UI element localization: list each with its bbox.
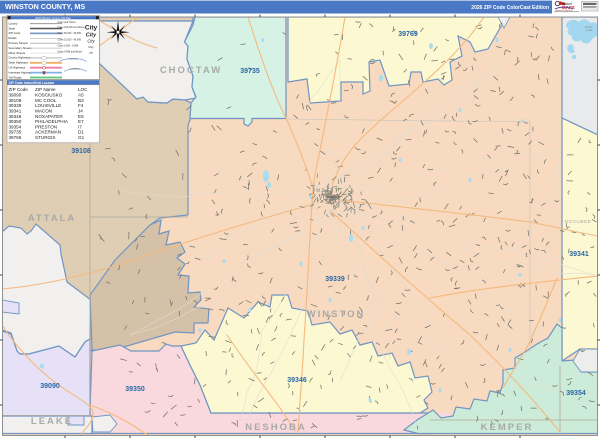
svg-text:G1: G1 — [78, 135, 85, 140]
svg-text:KOSCIUSKO: KOSCIUSKO — [35, 93, 63, 98]
svg-text:39354: 39354 — [9, 124, 22, 129]
svg-text:City: City — [88, 45, 94, 49]
svg-text:ZIP Name: ZIP Name — [35, 87, 56, 92]
svg-text:Louisville: Louisville — [326, 195, 339, 199]
svg-text:County: County — [9, 21, 18, 25]
svg-text:PRESTON: PRESTON — [35, 124, 57, 129]
svg-text:City: City — [87, 39, 95, 44]
svg-text:Primary Streets: Primary Streets — [9, 41, 29, 45]
svg-text:2026 Winston County, MS Map: 2026 Winston County, MS Map — [35, 16, 71, 20]
svg-text:Secondary Streets: Secondary Streets — [9, 46, 33, 50]
svg-text:39341: 39341 — [9, 109, 22, 114]
svg-text:39354: 39354 — [566, 390, 586, 397]
svg-text:KEMPER: KEMPER — [481, 422, 534, 433]
svg-text:D1: D1 — [78, 130, 84, 135]
svg-text:39341: 39341 — [569, 251, 589, 258]
svg-text:I7: I7 — [78, 124, 82, 129]
svg-text:LOUISVILLE: LOUISVILLE — [35, 103, 61, 108]
svg-text:Lake/River: Lake/River — [70, 68, 81, 71]
svg-text:ATTALA: ATTALA — [28, 213, 77, 224]
svg-text:LEAKE: LEAKE — [31, 416, 73, 427]
svg-text:39735: 39735 — [9, 130, 22, 135]
svg-text:City: City — [85, 25, 98, 32]
svg-text:Cities 4,999 and Below: Cities 4,999 and Below — [58, 50, 83, 53]
svg-text:WINSTON: WINSTON — [307, 309, 366, 320]
svg-text:39735: 39735 — [240, 68, 260, 75]
svg-text:39108: 39108 — [9, 98, 22, 103]
svg-text:2026 ZIP Code ColorCast Editio: 2026 ZIP Code ColorCast Edition — [471, 5, 549, 11]
svg-text:LAKE: LAKE — [586, 28, 593, 32]
svg-text:County Highways: County Highways — [9, 56, 31, 60]
svg-text:ACKERMAN: ACKERMAN — [35, 130, 61, 135]
svg-text:E6: E6 — [78, 114, 84, 119]
svg-text:Interstate Highways: Interstate Highways — [9, 70, 34, 74]
svg-text:39350: 39350 — [9, 119, 22, 124]
svg-text:39090: 39090 — [40, 383, 60, 390]
svg-text:State: State — [9, 26, 16, 30]
svg-text:STURGIS: STURGIS — [35, 135, 55, 140]
svg-text:State Highways: State Highways — [9, 61, 29, 65]
svg-text:Minor Streets: Minor Streets — [9, 51, 26, 55]
svg-text:39108: 39108 — [71, 148, 91, 155]
svg-text:NOXUBEE: NOXUBEE — [565, 219, 592, 225]
svg-text:Roads: Roads — [9, 36, 18, 40]
svg-text:MACON: MACON — [35, 109, 52, 114]
svg-text:NESHOBA: NESHOBA — [245, 422, 307, 433]
svg-text:Toll Roads: Toll Roads — [9, 75, 23, 79]
svg-text:CHOCTAW: CHOCTAW — [160, 65, 222, 76]
svg-text:39339: 39339 — [325, 276, 345, 283]
svg-text:PHILADELPHIA: PHILADELPHIA — [35, 119, 69, 124]
svg-text:LOC: LOC — [78, 87, 88, 92]
svg-text:WINSTON COUNTY, MS: WINSTON COUNTY, MS — [5, 2, 85, 11]
svg-text:Cities 10,000 - 49,999: Cities 10,000 - 49,999 — [58, 39, 82, 42]
svg-text:39339: 39339 — [9, 103, 22, 108]
svg-text:A5: A5 — [78, 93, 84, 98]
svg-text:America's Map Store: America's Map Store — [556, 9, 573, 12]
svg-text:J4: J4 — [78, 109, 83, 114]
svg-text:NOXAPATER: NOXAPATER — [35, 114, 63, 119]
svg-text:39346: 39346 — [9, 114, 22, 119]
svg-text:Cities 50,000 - 99,999: Cities 50,000 - 99,999 — [58, 32, 82, 35]
svg-text:E7: E7 — [78, 119, 84, 124]
svg-text:ZIP Code Index/Grid Locator: ZIP Code Index/Grid Locator — [9, 81, 55, 85]
svg-text:F4: F4 — [78, 103, 84, 108]
svg-text:39769: 39769 — [398, 31, 418, 38]
svg-text:Cities 100,000 and Above: Cities 100,000 and Above — [58, 26, 86, 29]
svg-text:39090: 39090 — [9, 93, 22, 98]
svg-text:Cities 5,000 - 9,999: Cities 5,000 - 9,999 — [58, 44, 79, 47]
svg-text:B3: B3 — [78, 98, 84, 103]
svg-text:Lake/City: Lake/City — [68, 57, 78, 60]
svg-text:39346: 39346 — [287, 377, 307, 384]
svg-text:39350: 39350 — [125, 386, 145, 393]
svg-text:US Highways: US Highways — [9, 66, 26, 70]
svg-text:ZIP Code: ZIP Code — [9, 87, 29, 92]
svg-text:39769: 39769 — [9, 135, 22, 140]
svg-text:ZIP Code: ZIP Code — [9, 31, 21, 35]
svg-text:MC COOL: MC COOL — [35, 98, 57, 103]
svg-text:Cities and Towns: Cities and Towns — [58, 21, 77, 24]
